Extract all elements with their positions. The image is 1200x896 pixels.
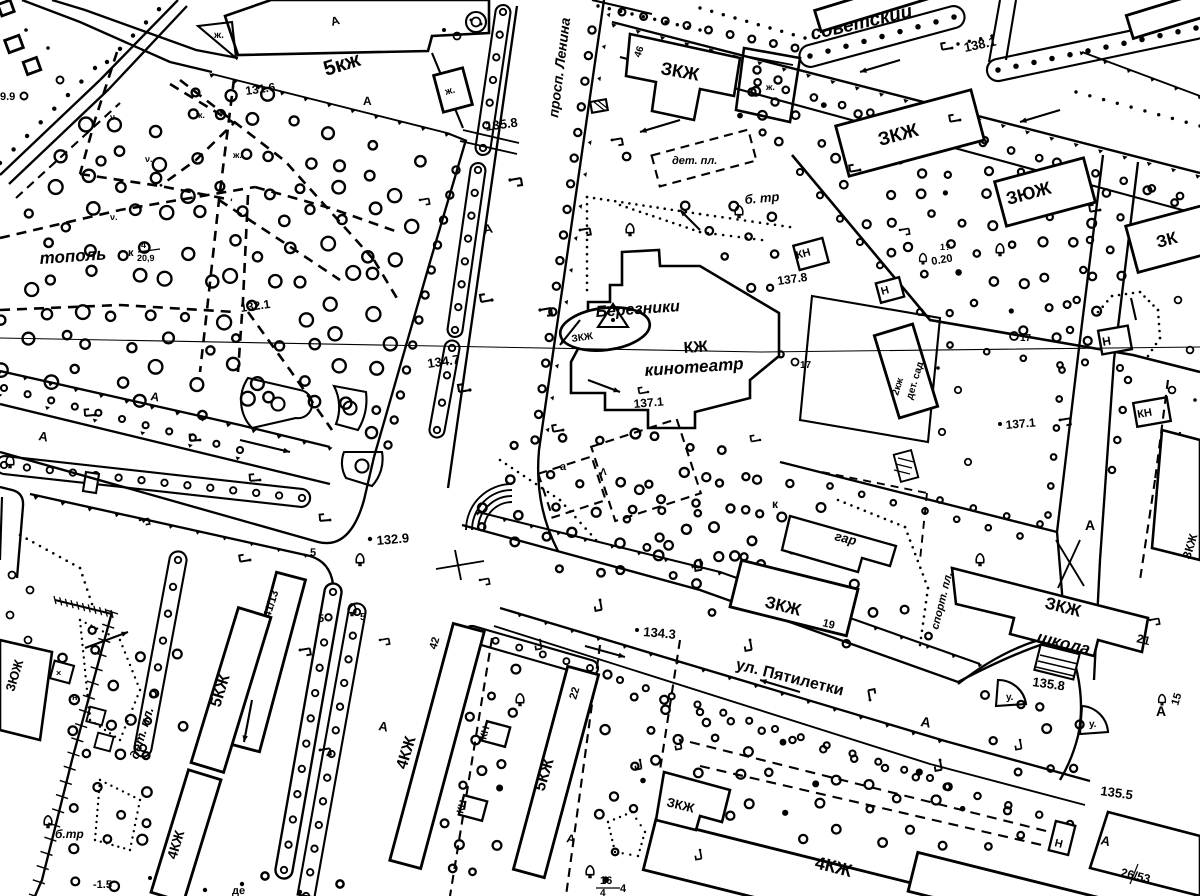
svg-text:1?: 1? bbox=[940, 242, 951, 252]
svg-text:у.: у. bbox=[1006, 692, 1014, 703]
svg-text:де: де bbox=[232, 885, 245, 896]
svg-text:КН: КН bbox=[1136, 407, 1153, 421]
svg-text:А: А bbox=[1085, 517, 1095, 533]
svg-text:16: 16 bbox=[600, 875, 612, 887]
svg-text:ν.: ν. bbox=[110, 112, 118, 122]
svg-text:н: н bbox=[72, 692, 77, 702]
svg-text:б. тр: б. тр bbox=[744, 189, 780, 207]
svg-text:дет. пл.: дет. пл. bbox=[672, 155, 717, 167]
svg-text:5: 5 bbox=[310, 547, 316, 559]
svg-text:ж.: ж. bbox=[765, 82, 775, 92]
svg-text:а: а bbox=[560, 461, 567, 473]
svg-text:4: 4 bbox=[620, 883, 627, 895]
svg-text:9.9: 9.9 bbox=[0, 91, 15, 103]
svg-text:у.: у. bbox=[1089, 719, 1097, 730]
svg-text:×: × bbox=[56, 668, 61, 678]
svg-text:ν.: ν. bbox=[110, 212, 118, 222]
svg-text:к: к bbox=[128, 247, 134, 259]
svg-text:5: 5 bbox=[360, 612, 366, 623]
svg-text:Λ: Λ bbox=[600, 467, 607, 478]
svg-text:А: А bbox=[363, 94, 372, 108]
svg-text:137.1: 137.1 bbox=[1005, 415, 1036, 432]
svg-text:ν.: ν. bbox=[145, 154, 153, 164]
svg-text:17: 17 bbox=[1020, 333, 1032, 344]
svg-text:ж.: ж. bbox=[195, 110, 205, 120]
svg-text:-1.5: -1.5 bbox=[93, 879, 112, 891]
svg-text:137.1: 137.1 bbox=[633, 394, 664, 411]
svg-text:5: 5 bbox=[318, 613, 324, 625]
svg-text:А: А bbox=[1156, 703, 1166, 719]
svg-text:ж.: ж. bbox=[232, 150, 242, 160]
svg-text:20,9: 20,9 bbox=[137, 253, 155, 263]
svg-text:4: 4 bbox=[141, 240, 146, 250]
svg-text:132.9: 132.9 bbox=[376, 530, 410, 548]
svg-text:17: 17 bbox=[800, 360, 812, 371]
svg-text:134.3: 134.3 bbox=[643, 624, 677, 642]
svg-text:б.тр: б.тр bbox=[55, 827, 84, 841]
svg-text:4: 4 bbox=[600, 888, 606, 896]
svg-text:к: к bbox=[772, 497, 779, 511]
svg-text:КЖ: КЖ bbox=[683, 338, 709, 357]
